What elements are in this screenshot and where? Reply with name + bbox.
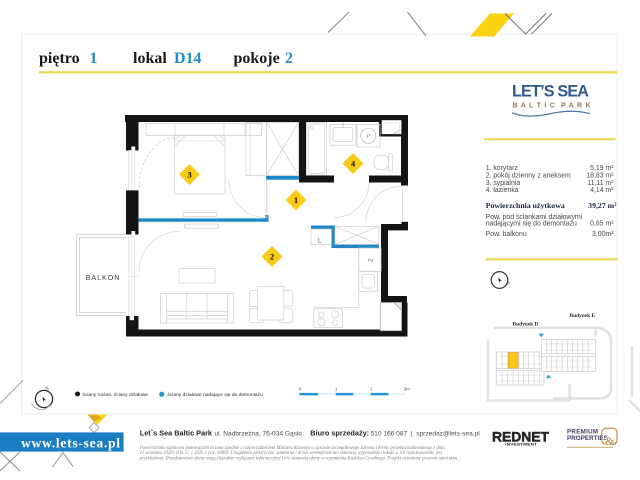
svg-text:1. korytarz: 1. korytarz — [486, 165, 519, 172]
svg-text:pokoje: pokoje — [234, 50, 280, 67]
svg-text:nadającymi się do demontażu: nadającymi się do demontażu — [486, 221, 577, 228]
svg-text:Budynek E: Budynek E — [570, 313, 596, 319]
svg-text:1: 1 — [335, 387, 338, 392]
svg-text:4,14 m²: 4,14 m² — [590, 187, 614, 194]
svg-text:11,11 m²: 11,11 m² — [587, 180, 614, 187]
svg-text:LET’S SEA: LET’S SEA — [512, 82, 589, 100]
svg-text:1: 1 — [294, 195, 298, 205]
svg-text:L: L — [318, 238, 322, 245]
svg-text:ul. Nadbrzeżna, 76-034 Gąski: ul. Nadbrzeżna, 76-034 Gąski — [215, 430, 303, 437]
svg-text:1: 1 — [90, 50, 98, 67]
svg-text:u: u — [613, 440, 617, 447]
svg-text:2: 2 — [270, 252, 274, 262]
svg-text:P: P — [365, 134, 370, 140]
svg-text:Budynek D: Budynek D — [513, 321, 539, 327]
svg-text:Biuro sprzedaży:: Biuro sprzedaży: — [310, 428, 369, 437]
svg-text:18,83 m²: 18,83 m² — [586, 172, 614, 179]
svg-text:2. pokój dzienny z aneksem: 2. pokój dzienny z aneksem — [486, 172, 571, 179]
svg-text:3m: 3m — [404, 387, 411, 392]
svg-text:D14: D14 — [174, 50, 202, 67]
svg-text:www.lets-sea.pl: www.lets-sea.pl — [21, 436, 120, 451]
svg-text:piętro: piętro — [39, 50, 80, 67]
svg-text:INVESTMENT: INVESTMENT — [505, 442, 538, 447]
svg-text:przykładowe. Przedstawione pla: przykładowe. Przedstawione plany mają ch… — [139, 456, 459, 461]
svg-text:ściany działowe nadające się d: ściany działowe nadające się do demontaż… — [167, 392, 263, 398]
svg-text:4. łazienka: 4. łazienka — [486, 187, 519, 194]
svg-text:2: 2 — [285, 50, 293, 67]
svg-text:3,00m²: 3,00m² — [592, 231, 614, 238]
svg-text:3. sypialnia: 3. sypialnia — [486, 180, 521, 187]
svg-text:Let`s Sea Baltic Park: Let`s Sea Baltic Park — [140, 428, 213, 437]
svg-text:39,27 m²: 39,27 m² — [588, 201, 617, 210]
svg-text:0,65 m²: 0,65 m² — [590, 221, 614, 228]
svg-text:ściany nośne, ściany działowe: ściany nośne, ściany działowe — [83, 392, 149, 398]
svg-text:0: 0 — [299, 387, 302, 392]
svg-text:lokal: lokal — [133, 50, 167, 67]
svg-text:B A L T I C P A R K: B A L T I C P A R K — [513, 103, 591, 110]
svg-text:Pow. balkonu: Pow. balkonu — [486, 231, 527, 238]
svg-text:4: 4 — [351, 159, 356, 169]
svg-text:Z: Z — [367, 259, 373, 263]
svg-text:2: 2 — [370, 387, 373, 392]
svg-text:Powierzchnia użytkowa: Powierzchnia użytkowa — [486, 201, 565, 210]
svg-text:510 166 087 | sprzedaz@lets-: 510 166 087 | sprzedaz@lets-sea.pl — [371, 430, 481, 437]
svg-text:3: 3 — [187, 170, 191, 180]
svg-text:5,19 m²: 5,19 m² — [590, 165, 614, 172]
svg-text:BALKON: BALKON — [86, 273, 121, 282]
